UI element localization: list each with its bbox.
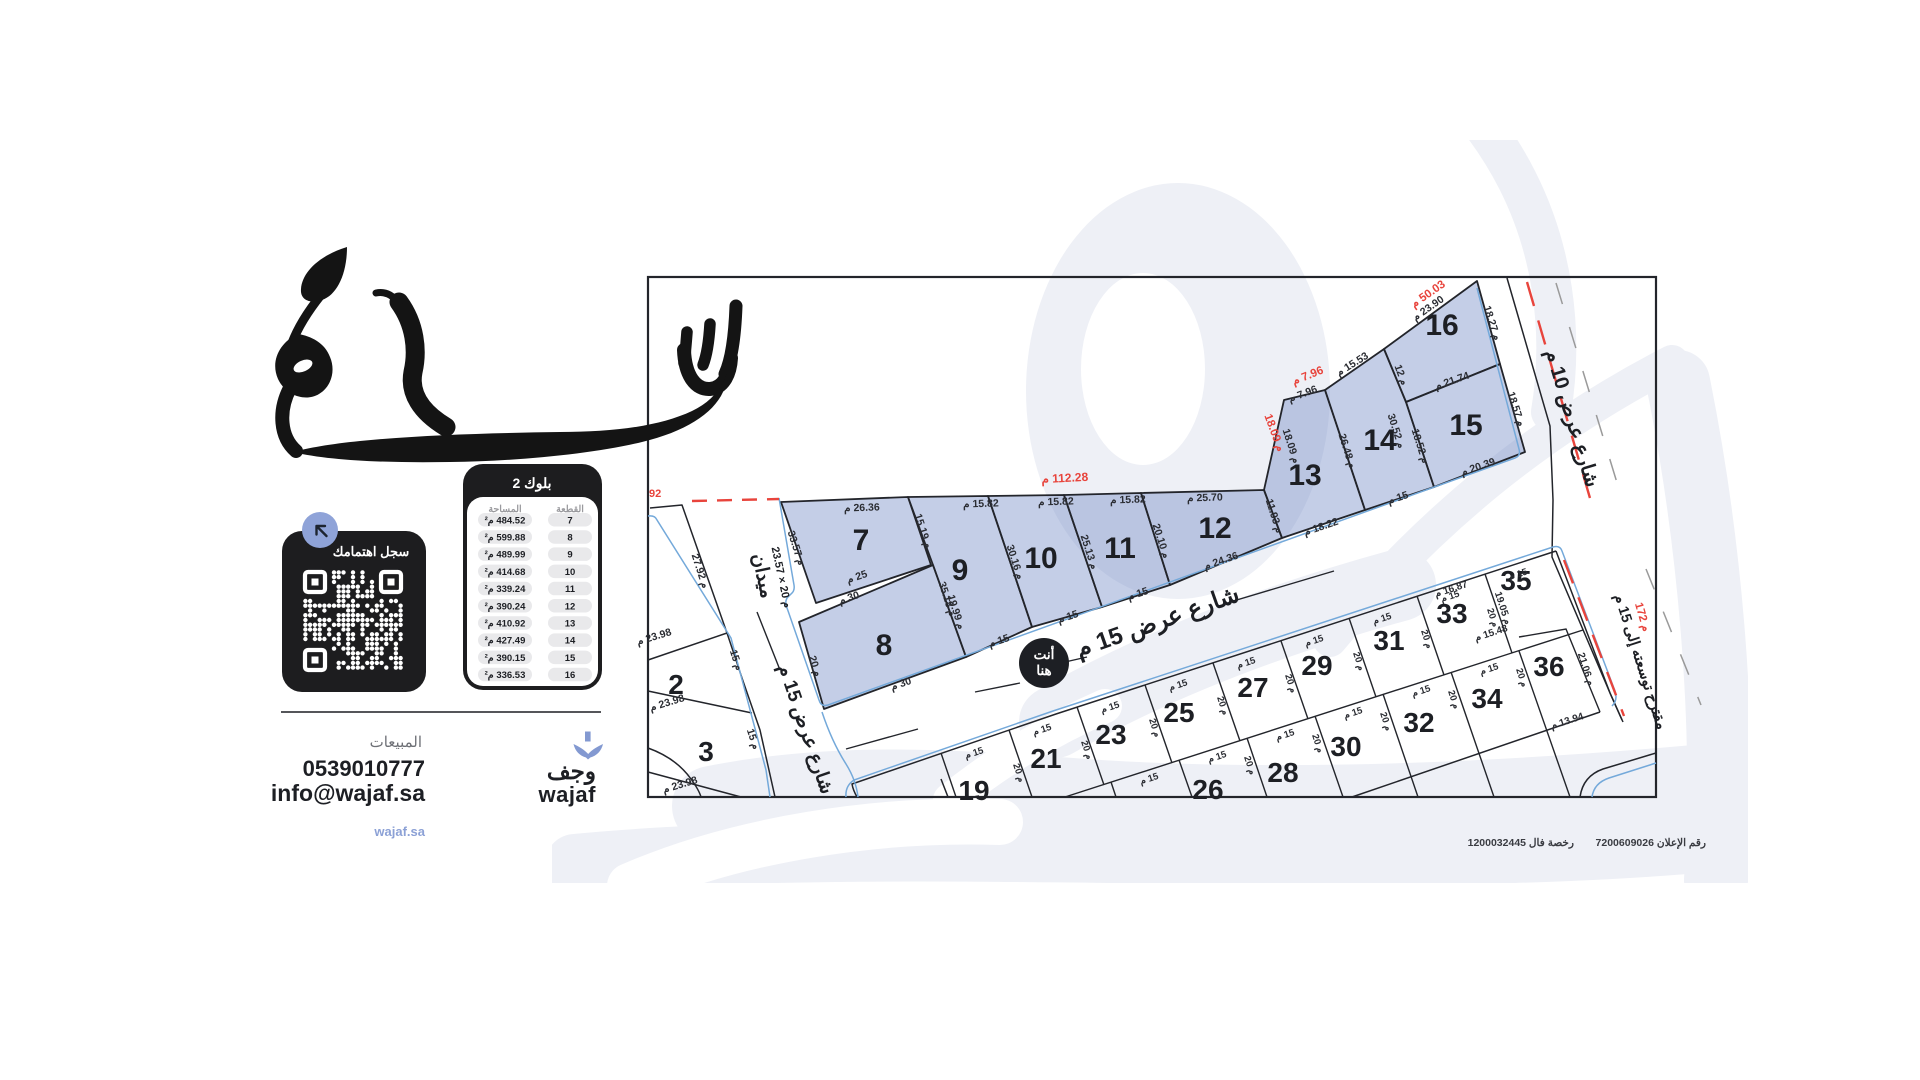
- svg-text:‏599.88 م²: ‏599.88 م²: [485, 533, 526, 544]
- svg-text:25: 25: [1163, 697, 1194, 728]
- svg-text:‏15.82 م: ‏15.82 م: [963, 497, 999, 510]
- svg-text:info@wajaf.sa: info@wajaf.sa: [271, 780, 425, 806]
- svg-text:8: 8: [876, 629, 893, 662]
- svg-text:23: 23: [1095, 719, 1126, 750]
- svg-text:19: 19: [958, 775, 989, 806]
- svg-text:سجل اهتمامك: سجل اهتمامك: [333, 544, 410, 559]
- svg-text:أنت: أنت: [1034, 644, 1055, 662]
- svg-text:36: 36: [1533, 651, 1564, 682]
- svg-text:16: 16: [565, 670, 576, 681]
- svg-text:7: 7: [567, 515, 572, 526]
- svg-text:بلوك 2: بلوك 2: [513, 475, 552, 492]
- svg-text:30: 30: [1330, 731, 1361, 762]
- svg-text:13: 13: [565, 619, 576, 630]
- svg-text:‏336.53 م²: ‏336.53 م²: [485, 670, 526, 681]
- svg-text:29: 29: [1301, 650, 1332, 681]
- svg-text:9: 9: [567, 550, 572, 561]
- svg-text:10: 10: [1024, 542, 1057, 575]
- svg-text:21: 21: [1030, 743, 1061, 774]
- svg-text:15: 15: [1449, 409, 1482, 442]
- svg-text:12: 12: [1198, 512, 1231, 545]
- svg-text:‏427.49 م²: ‏427.49 م²: [485, 636, 526, 647]
- svg-text:المبيعات: المبيعات: [370, 734, 422, 751]
- svg-text:14: 14: [565, 636, 576, 647]
- svg-text:‏26.36 م: ‏26.36 م: [844, 501, 880, 514]
- svg-text:‏15.82 م: ‏15.82 م: [1110, 493, 1146, 506]
- svg-text:9: 9: [952, 554, 969, 587]
- svg-text:wajaf: wajaf: [537, 782, 596, 807]
- svg-text:‏390.15 م²: ‏390.15 م²: [485, 653, 526, 664]
- svg-text:‏339.24 م²: ‏339.24 م²: [485, 584, 526, 595]
- svg-text:11: 11: [565, 584, 576, 595]
- svg-text:31: 31: [1373, 625, 1404, 656]
- svg-text:11: 11: [1104, 532, 1136, 565]
- svg-text:‏25.70 م: ‏25.70 م: [1187, 491, 1223, 504]
- svg-text:wajaf.sa: wajaf.sa: [373, 824, 425, 839]
- svg-text:8: 8: [567, 533, 572, 544]
- svg-text:3: 3: [698, 736, 714, 767]
- svg-text:‏390.24 م²: ‏390.24 م²: [485, 601, 526, 612]
- svg-text:15: 15: [565, 653, 576, 664]
- svg-text:‏410.92 م²: ‏410.92 م²: [485, 619, 526, 630]
- svg-text:0539010777: 0539010777: [303, 756, 425, 781]
- svg-text:26: 26: [1192, 774, 1223, 805]
- svg-text:هنا: هنا: [1036, 663, 1051, 678]
- svg-text:92: 92: [649, 488, 661, 500]
- svg-text:12: 12: [565, 601, 576, 612]
- svg-text:رخصة فال 1200032445: رخصة فال 1200032445: [1468, 837, 1574, 849]
- svg-text:27: 27: [1237, 672, 1268, 703]
- svg-text:‏15.82 م: ‏15.82 م: [1038, 495, 1074, 508]
- svg-text:7: 7: [853, 524, 870, 557]
- svg-text:رقم الإعلان 7200609026: رقم الإعلان 7200609026: [1596, 837, 1706, 850]
- svg-text:‏489.99 م²: ‏489.99 م²: [485, 550, 526, 561]
- svg-text:28: 28: [1267, 757, 1298, 788]
- svg-text:34: 34: [1471, 683, 1503, 714]
- svg-text:‏484.52 م²: ‏484.52 م²: [485, 515, 526, 526]
- svg-text:‏414.68 م²: ‏414.68 م²: [485, 567, 526, 578]
- svg-text:32: 32: [1403, 707, 1434, 738]
- svg-text:10: 10: [565, 567, 576, 578]
